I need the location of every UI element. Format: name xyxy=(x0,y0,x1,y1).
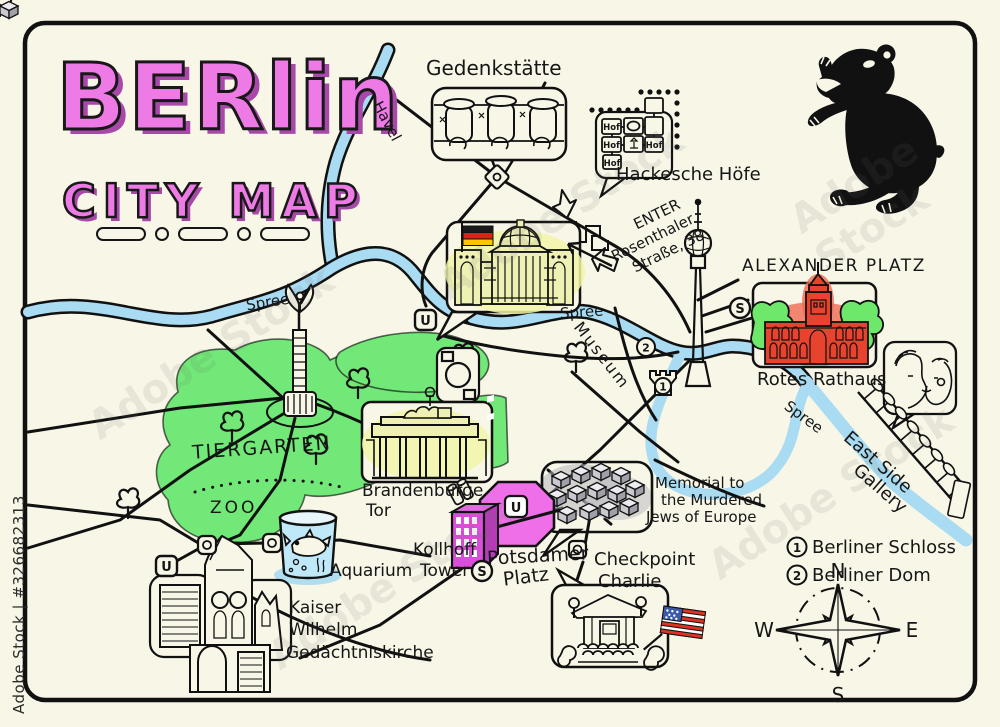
legend-item-2: Berliner Dom xyxy=(812,565,931,586)
dom-number: 2 xyxy=(642,342,650,355)
map-subtitle: CITY MAP xyxy=(62,174,365,228)
compass-east: E xyxy=(906,618,919,642)
label-spree-mid: Spree xyxy=(559,302,603,323)
berlin-bear-icon xyxy=(808,45,944,214)
title-decoration xyxy=(96,227,310,241)
label-kaiser-2: Wilhelm xyxy=(289,620,357,640)
u-bahn-marker: U xyxy=(415,310,436,330)
map-title: BERlin xyxy=(56,44,400,151)
compass-west: W xyxy=(754,618,774,642)
label-kaiser-3: Gedächtniskirche xyxy=(286,643,434,663)
dom-marker: 2 xyxy=(637,338,655,356)
deco-dot xyxy=(155,227,169,241)
label-gedenkstaette: Gedenkstätte xyxy=(426,56,562,80)
compass-south: S xyxy=(832,683,845,707)
label-hackesche-hoefe: Hackesche Höfe xyxy=(616,164,761,185)
stop-marker xyxy=(198,536,216,554)
label-kaiser-1: Kaiser xyxy=(289,598,341,618)
legend-item-1: Berliner Schloss xyxy=(812,537,956,558)
stock-watermark: Adobe Stock | #326682313 xyxy=(10,495,28,714)
deco-dash xyxy=(260,227,310,241)
schloss-marker: 1 xyxy=(650,371,676,395)
kiss-mural-bubble xyxy=(884,342,956,428)
berlin-city-map: Hof Hof Hof Hof xyxy=(0,0,1000,727)
label-memorial-2: the Murdered xyxy=(661,491,762,509)
label-kollhoff-2: Tower xyxy=(420,561,469,581)
hof-label: Hof xyxy=(603,123,620,133)
svg-text:U: U xyxy=(161,560,172,575)
hof-label: Hof xyxy=(603,141,620,151)
s-bahn-marker: S xyxy=(730,298,750,318)
deco-dash xyxy=(96,227,146,241)
label-memorial-1: Memorial to xyxy=(655,474,744,492)
svg-text:U: U xyxy=(420,314,431,329)
svg-text:S: S xyxy=(477,565,486,580)
deco-dash xyxy=(178,227,228,241)
label-brandenburger-2: Tor xyxy=(366,501,391,521)
label-rotes-rathaus: Rotes Rathaus xyxy=(757,369,886,390)
svg-text:S: S xyxy=(735,302,744,317)
legend-numbers: 1 2 xyxy=(788,538,807,585)
label-checkpoint-2: Charlie xyxy=(598,571,661,592)
label-checkpoint-1: Checkpoint xyxy=(594,549,695,570)
label-alexanderplatz: ALEXANDER PLATZ xyxy=(742,256,926,276)
label-memorial-3: Jews of Europe xyxy=(646,508,756,526)
label-kollhoff-1: Kollhoff xyxy=(413,540,476,560)
label-aquarium: Aquarium xyxy=(330,561,412,581)
svg-text:1: 1 xyxy=(793,541,801,555)
brandenburg-gate-bubble xyxy=(362,388,492,483)
u-bahn-marker: U xyxy=(156,556,177,576)
hof-label: Hof xyxy=(646,141,663,151)
label-brandenburger-1: Brandenburge xyxy=(362,481,483,501)
svg-text:2: 2 xyxy=(793,569,801,583)
rotes-rathaus-bubble xyxy=(751,262,883,367)
label-zoo: ZOO xyxy=(210,498,257,518)
arrow-down-icon xyxy=(553,190,576,218)
stop-marker xyxy=(263,534,281,552)
schloss-number: 1 xyxy=(659,381,667,394)
u-bahn-marker: U xyxy=(511,501,522,516)
stelae-cube-icon xyxy=(0,2,18,19)
deco-dot xyxy=(237,227,251,241)
chancellery-plan xyxy=(437,348,479,402)
